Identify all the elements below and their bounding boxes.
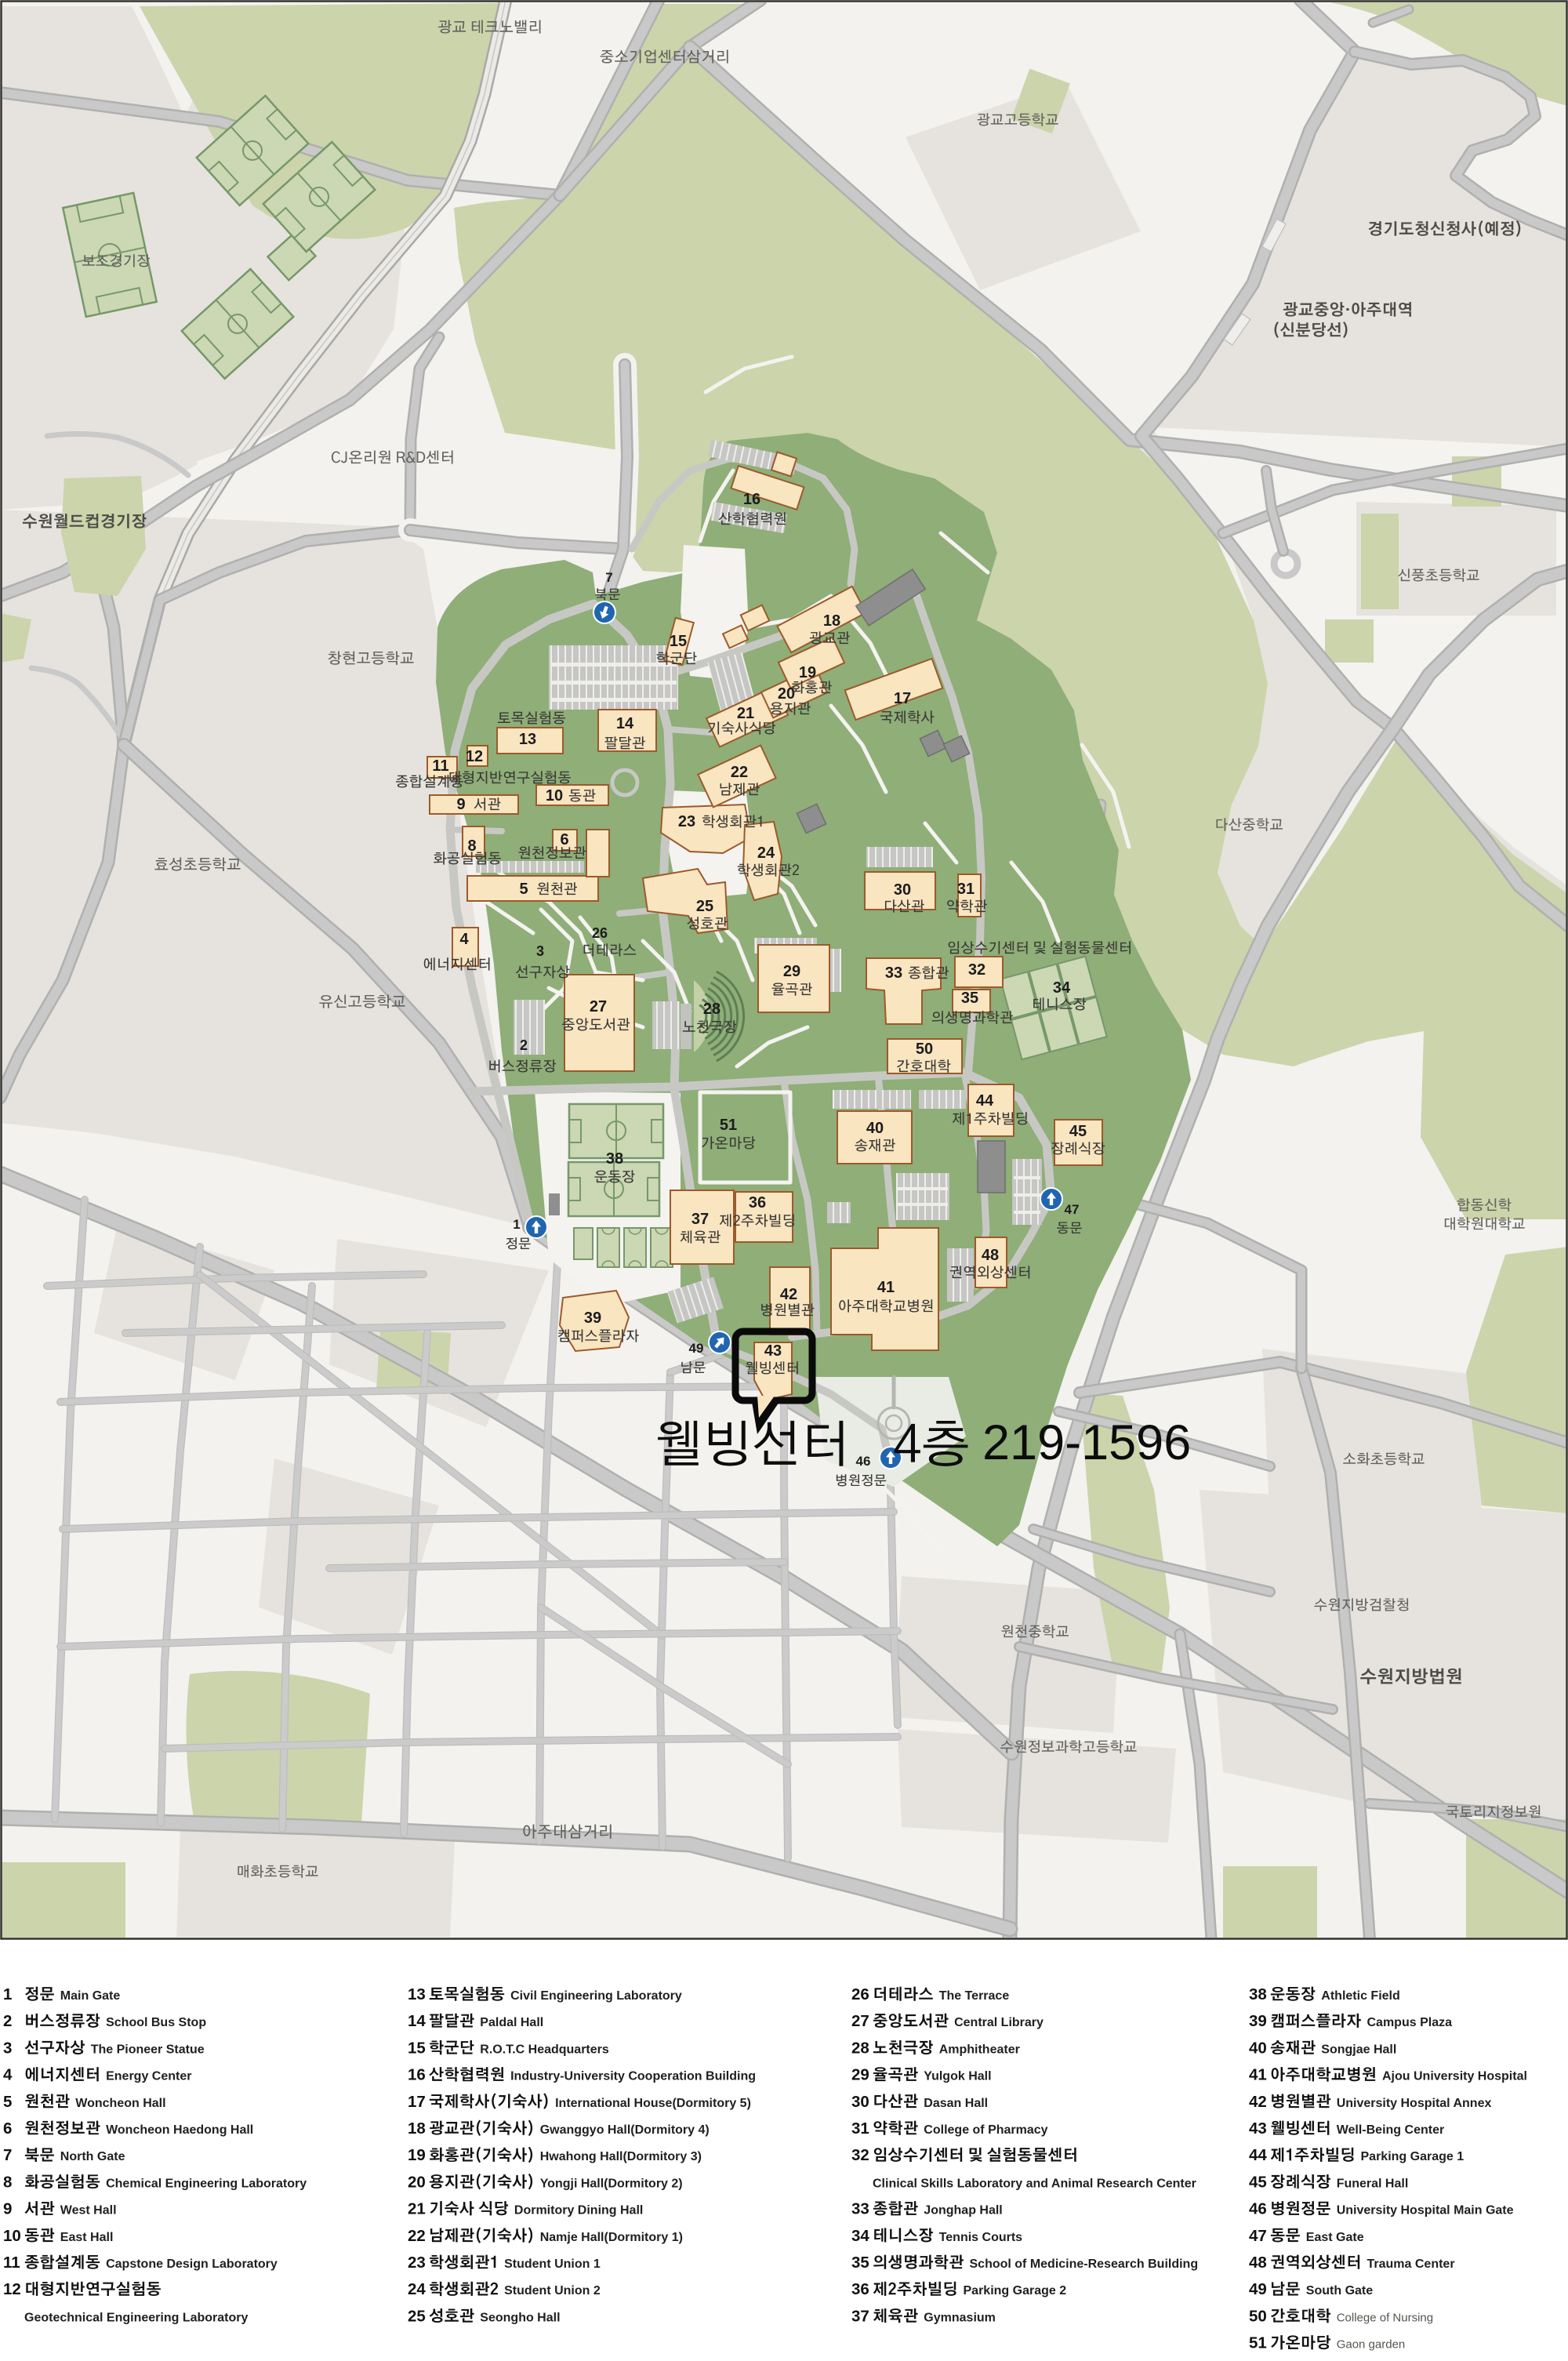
svg-text:14: 14	[408, 2012, 426, 2030]
svg-text:Central Library: Central Library	[954, 2016, 1044, 2029]
svg-text:School of Medicine-Research Bu: School of Medicine-Research Building	[970, 2257, 1199, 2271]
svg-text:44: 44	[1249, 2146, 1267, 2164]
svg-text:40: 40	[1249, 2039, 1267, 2057]
svg-text:23: 23	[408, 2254, 426, 2272]
svg-text:Geotechnical Engineering Labor: Geotechnical Engineering Laboratory	[24, 2311, 248, 2324]
svg-text:Clinical Skills Laboratory and: Clinical Skills Laboratory and Animal Re…	[873, 2177, 1196, 2190]
svg-text:Gymnasium: Gymnasium	[924, 2311, 996, 2324]
svg-text:Gwanggyo Hall(Dormitory 4): Gwanggyo Hall(Dormitory 4)	[540, 2123, 710, 2137]
svg-text:9: 9	[3, 2200, 12, 2218]
svg-text:21: 21	[737, 705, 754, 722]
svg-text:30: 30	[894, 881, 911, 899]
svg-text:34: 34	[1053, 979, 1071, 997]
svg-text:Dormitory Dining Hall: Dormitory Dining Hall	[514, 2204, 643, 2218]
svg-text:37: 37	[691, 1211, 709, 1228]
svg-text:West Hall: West Hall	[60, 2204, 117, 2218]
svg-text:45: 45	[1069, 1123, 1087, 1140]
svg-text:Gaon garden: Gaon garden	[1337, 2338, 1406, 2352]
svg-text:27: 27	[851, 2012, 869, 2030]
svg-text:29: 29	[851, 2066, 869, 2084]
svg-text:3: 3	[536, 943, 544, 959]
svg-text:South Gate: South Gate	[1306, 2284, 1373, 2297]
svg-text:13: 13	[519, 731, 536, 748]
svg-text:29: 29	[783, 963, 800, 980]
svg-text:University Hospital Annex: University Hospital Annex	[1337, 2097, 1492, 2110]
svg-text:12: 12	[466, 748, 483, 765]
svg-text:The Terrace: The Terrace	[939, 1989, 1010, 2003]
svg-text:36: 36	[749, 1194, 766, 1211]
svg-text:22: 22	[731, 764, 748, 781]
svg-text:Ajou University Hospital: Ajou University Hospital	[1382, 2070, 1527, 2083]
svg-text:Funeral Hall: Funeral Hall	[1337, 2177, 1409, 2190]
svg-text:School Bus Stop: School Bus Stop	[106, 2016, 206, 2029]
svg-text:15: 15	[670, 633, 687, 650]
svg-text:East Gate: East Gate	[1306, 2231, 1364, 2244]
svg-text:1: 1	[513, 1217, 520, 1232]
svg-text:6: 6	[3, 2119, 12, 2138]
svg-text:Campus Plaza: Campus Plaza	[1367, 2016, 1453, 2029]
svg-text:R.O.T.C Headquarters: R.O.T.C Headquarters	[480, 2043, 609, 2056]
svg-text:37: 37	[851, 2307, 869, 2325]
svg-text:48: 48	[982, 1247, 999, 1264]
svg-text:2: 2	[520, 1037, 528, 1053]
svg-text:12: 12	[3, 2280, 21, 2298]
svg-text:26: 26	[851, 1985, 869, 2003]
svg-text:College of Nursing: College of Nursing	[1337, 2311, 1433, 2324]
svg-text:219-1596: 219-1596	[982, 1415, 1191, 1470]
svg-text:38: 38	[1249, 1985, 1267, 2003]
svg-text:9: 9	[456, 796, 465, 813]
svg-text:28: 28	[851, 2039, 869, 2057]
svg-text:Amphitheater: Amphitheater	[939, 2043, 1020, 2056]
svg-text:49: 49	[1249, 2280, 1267, 2298]
svg-text:36: 36	[851, 2280, 869, 2298]
svg-text:Seongho Hall: Seongho Hall	[480, 2311, 560, 2324]
svg-text:14: 14	[616, 715, 634, 732]
svg-text:31: 31	[957, 881, 975, 898]
svg-text:32: 32	[968, 961, 985, 979]
svg-text:24: 24	[408, 2280, 426, 2298]
svg-text:11: 11	[432, 757, 448, 775]
svg-text:2: 2	[3, 2012, 12, 2030]
svg-text:50: 50	[1249, 2307, 1267, 2325]
svg-text:24: 24	[757, 845, 775, 862]
svg-text:East Hall: East Hall	[60, 2231, 114, 2244]
svg-text:31: 31	[851, 2119, 869, 2138]
svg-text:35: 35	[961, 990, 978, 1007]
svg-text:Yulgok Hall: Yulgok Hall	[924, 2070, 991, 2083]
svg-text:32: 32	[851, 2146, 869, 2164]
svg-text:Well-Being Center: Well-Being Center	[1337, 2123, 1445, 2137]
svg-text:23: 23	[678, 813, 695, 830]
svg-text:41: 41	[1249, 2066, 1267, 2084]
svg-text:27: 27	[590, 998, 607, 1015]
svg-text:26: 26	[592, 925, 608, 941]
svg-text:Paldal Hall: Paldal Hall	[480, 2016, 543, 2029]
svg-text:Civil Engineering Laboratory: Civil Engineering Laboratory	[510, 1989, 682, 2003]
svg-text:Capstone Design Laboratory: Capstone Design Laboratory	[106, 2257, 278, 2271]
svg-text:33: 33	[885, 964, 902, 982]
svg-text:Namje Hall(Dormitory 1): Namje Hall(Dormitory 1)	[540, 2231, 683, 2244]
svg-text:50: 50	[916, 1041, 933, 1058]
svg-text:25: 25	[408, 2307, 426, 2325]
svg-text:13: 13	[408, 1985, 426, 2003]
svg-text:42: 42	[1249, 2093, 1267, 2111]
svg-text:Tennis Courts: Tennis Courts	[939, 2231, 1022, 2244]
svg-text:33: 33	[851, 2200, 869, 2218]
svg-text:48: 48	[1249, 2254, 1267, 2272]
svg-text:51: 51	[1249, 2334, 1267, 2352]
svg-text:College of Pharmacy: College of Pharmacy	[924, 2123, 1047, 2137]
svg-text:5: 5	[3, 2093, 12, 2111]
svg-text:41: 41	[877, 1279, 895, 1296]
svg-text:17: 17	[408, 2093, 426, 2111]
svg-text:International House(Dormitory: International House(Dormitory 5)	[555, 2097, 751, 2110]
svg-text:Athletic Field: Athletic Field	[1321, 1989, 1399, 2003]
svg-text:16: 16	[743, 491, 760, 508]
svg-text:Woncheon Haedong Hall: Woncheon Haedong Hall	[106, 2123, 253, 2137]
svg-text:Jonghap Hall: Jonghap Hall	[924, 2204, 1002, 2218]
svg-text:46: 46	[856, 1454, 871, 1469]
svg-text:16: 16	[408, 2066, 426, 2084]
svg-text:46: 46	[1249, 2200, 1267, 2218]
svg-text:The Pioneer Statue: The Pioneer Statue	[91, 2043, 205, 2056]
svg-text:3: 3	[3, 2039, 12, 2057]
svg-text:49: 49	[689, 1341, 704, 1356]
svg-text:39: 39	[1249, 2012, 1267, 2030]
svg-text:34: 34	[851, 2227, 869, 2245]
svg-text:Chemical Engineering Laborator: Chemical Engineering Laboratory	[106, 2177, 307, 2190]
svg-text:Dasan Hall: Dasan Hall	[924, 2097, 988, 2110]
svg-text:7: 7	[3, 2146, 12, 2164]
svg-text:Songjae Hall: Songjae Hall	[1321, 2043, 1396, 2056]
svg-text:47: 47	[1249, 2227, 1267, 2245]
svg-text:43: 43	[764, 1342, 782, 1360]
svg-text:20: 20	[778, 685, 795, 703]
svg-text:Student Union 1: Student Union 1	[504, 2257, 601, 2271]
svg-text:43: 43	[1249, 2119, 1267, 2138]
svg-text:42: 42	[780, 1286, 797, 1303]
svg-text:1: 1	[3, 1985, 12, 2003]
svg-text:15: 15	[408, 2039, 426, 2057]
svg-text:Yongji Hall(Dormitory 2): Yongji Hall(Dormitory 2)	[540, 2177, 683, 2190]
svg-text:19: 19	[408, 2146, 426, 2164]
svg-text:University Hospital Main Gate: University Hospital Main Gate	[1337, 2204, 1514, 2218]
svg-text:5: 5	[519, 881, 528, 898]
svg-text:8: 8	[3, 2173, 12, 2191]
svg-text:Parking Garage 1: Parking Garage 1	[1361, 2150, 1465, 2163]
svg-text:Parking Garage 2: Parking Garage 2	[964, 2284, 1067, 2297]
svg-text:11: 11	[3, 2254, 20, 2272]
svg-text:North Gate: North Gate	[60, 2150, 125, 2163]
svg-text:39: 39	[584, 1309, 601, 1327]
svg-text:Main Gate: Main Gate	[60, 1989, 121, 2003]
svg-text:35: 35	[851, 2254, 869, 2272]
svg-text:18: 18	[408, 2119, 426, 2138]
svg-text:47: 47	[1065, 1202, 1080, 1217]
svg-text:Hwahong Hall(Dormitory 3): Hwahong Hall(Dormitory 3)	[540, 2150, 702, 2163]
svg-text:Woncheon Hall: Woncheon Hall	[75, 2097, 165, 2110]
svg-text:51: 51	[720, 1117, 737, 1134]
svg-text:30: 30	[851, 2093, 869, 2111]
svg-text:45: 45	[1249, 2173, 1267, 2191]
svg-text:22: 22	[408, 2227, 426, 2245]
svg-text:10: 10	[3, 2227, 21, 2245]
svg-text:18: 18	[823, 612, 840, 630]
svg-text:4: 4	[459, 931, 469, 948]
svg-text:Energy Center: Energy Center	[106, 2070, 191, 2083]
svg-text:Student Union 2: Student Union 2	[504, 2284, 601, 2297]
svg-text:20: 20	[408, 2173, 426, 2191]
svg-text:Industry-University Cooperatio: Industry-University Cooperation Building	[510, 2070, 756, 2083]
svg-text:40: 40	[866, 1120, 884, 1137]
svg-text:7: 7	[605, 570, 612, 585]
svg-text:10: 10	[546, 787, 563, 805]
svg-text:38: 38	[606, 1150, 623, 1168]
svg-text:17: 17	[894, 690, 911, 707]
svg-text:44: 44	[976, 1092, 994, 1110]
svg-text:4: 4	[3, 2066, 13, 2084]
svg-text:25: 25	[696, 898, 713, 915]
svg-text:19: 19	[799, 664, 816, 681]
svg-text:21: 21	[408, 2200, 426, 2218]
svg-text:Trauma Center: Trauma Center	[1367, 2257, 1455, 2271]
svg-text:28: 28	[703, 1001, 720, 1018]
svg-text:6: 6	[560, 831, 568, 848]
